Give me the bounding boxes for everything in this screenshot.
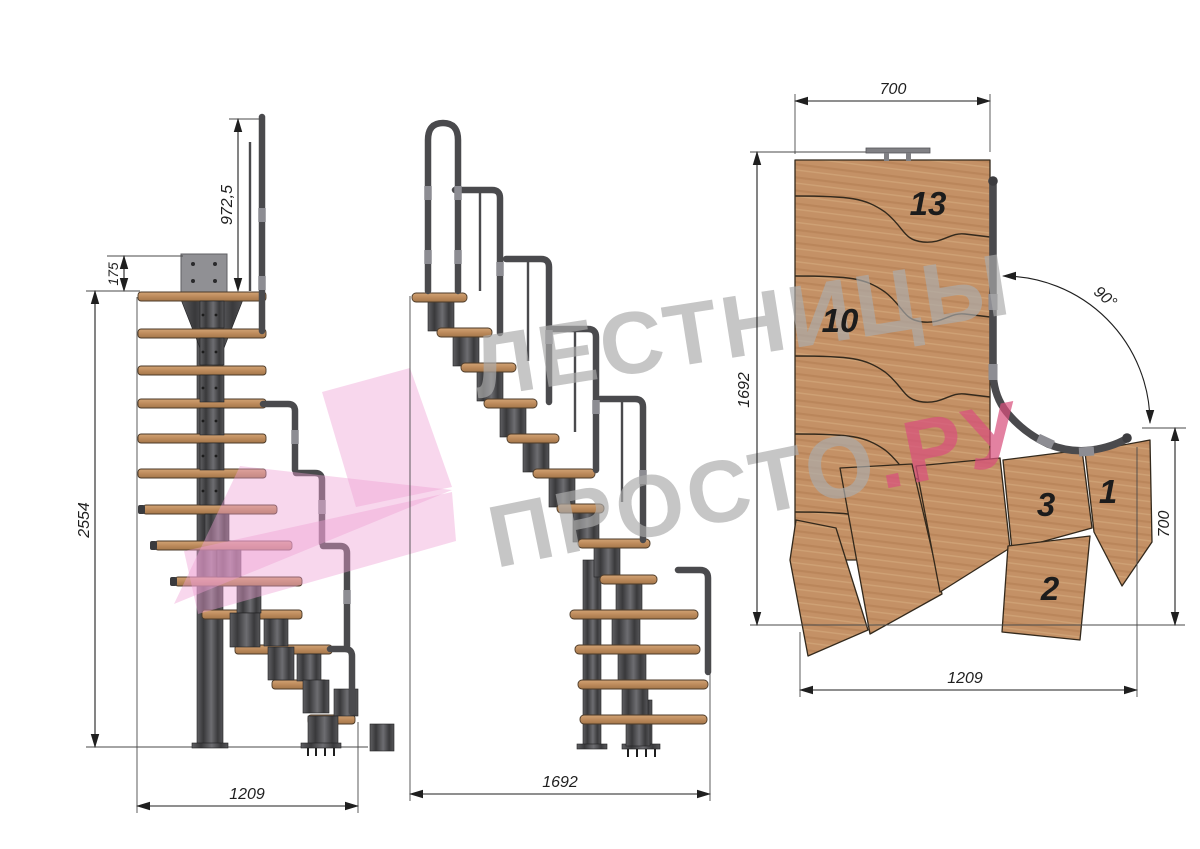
top-bracket	[866, 148, 930, 161]
wood-step	[570, 610, 698, 619]
step-label-2: 2	[1040, 570, 1060, 607]
base-plate	[577, 744, 607, 749]
wood-step	[578, 680, 708, 689]
svg-text:2554: 2554	[76, 502, 93, 539]
svg-text:1692: 1692	[542, 774, 578, 791]
lower-base-plate	[301, 743, 341, 748]
wood-step	[600, 575, 657, 584]
bolt-dot	[215, 351, 218, 354]
bolt-dot	[202, 351, 205, 354]
step-module	[428, 302, 454, 331]
step-module	[618, 654, 646, 684]
step-end-cap	[170, 577, 177, 586]
dim-total-height: 2554	[76, 291, 140, 747]
bolt-dot	[202, 314, 205, 317]
drawing-canvas: ЛЕСТНИЦЫ ПРОСТО.РУ 972,5 175 2554 1209	[0, 0, 1200, 849]
step-end-cap	[150, 541, 157, 550]
anchor-bolts	[628, 749, 655, 757]
step-label-13: 13	[910, 185, 947, 222]
bolt-dot	[202, 455, 205, 458]
wood-step	[138, 292, 266, 301]
bolt-dot	[202, 387, 205, 390]
handrail-loop	[428, 123, 458, 291]
svg-text:175: 175	[105, 262, 121, 286]
front-elevation-view	[412, 123, 708, 757]
wood-step	[412, 293, 467, 302]
svg-text:700: 700	[1156, 511, 1173, 538]
handrail-segment	[678, 570, 708, 672]
bolt-dot	[215, 420, 218, 423]
step-end-cap	[138, 505, 145, 514]
svg-text:972,5: 972,5	[219, 185, 236, 225]
step-module	[303, 680, 329, 713]
rail-end-cap	[1122, 433, 1132, 443]
svg-text:1209: 1209	[229, 786, 265, 803]
step-module	[370, 724, 394, 751]
wall-mount-plate	[181, 254, 227, 292]
dim-plan-top-width: 700	[795, 81, 990, 154]
bolt-dot	[215, 490, 218, 493]
step-module	[612, 619, 640, 649]
bolt-dot	[215, 387, 218, 390]
step-module	[523, 443, 549, 472]
step-module	[230, 613, 260, 647]
svg-text:1692: 1692	[736, 372, 753, 408]
bolt-dot	[215, 455, 218, 458]
step-label-1: 1	[1099, 473, 1117, 510]
wood-step	[138, 329, 266, 338]
svg-text:700: 700	[880, 81, 907, 98]
step-module	[626, 724, 650, 746]
rail-end-cap	[988, 176, 998, 186]
dim-turn-angle: 90°	[1003, 276, 1150, 423]
step-module	[297, 654, 321, 681]
wood-step	[580, 715, 707, 724]
wood-step	[138, 434, 266, 443]
bolt-dot	[202, 420, 205, 423]
handrail-segment	[263, 404, 295, 470]
step-module	[622, 689, 648, 717]
step-module	[268, 647, 294, 680]
column-base-plate	[192, 743, 228, 748]
wood-step	[507, 434, 559, 443]
step-module	[264, 619, 288, 646]
step-module	[308, 716, 338, 744]
wood-step	[138, 366, 266, 375]
bolt-dot	[202, 490, 205, 493]
anchor-bolts	[308, 748, 334, 756]
bolt-dot	[215, 314, 218, 317]
step-label-3: 3	[1037, 486, 1055, 523]
svg-text:1209: 1209	[947, 670, 983, 687]
wood-step	[575, 645, 700, 654]
step-module	[616, 584, 642, 613]
step-label-10: 10	[822, 302, 859, 339]
staircase-technical-drawing: ЛЕСТНИЦЫ ПРОСТО.РУ 972,5 175 2554 1209	[0, 0, 1200, 849]
dim-plate-height: 175	[105, 256, 183, 291]
step-1	[1085, 440, 1152, 586]
